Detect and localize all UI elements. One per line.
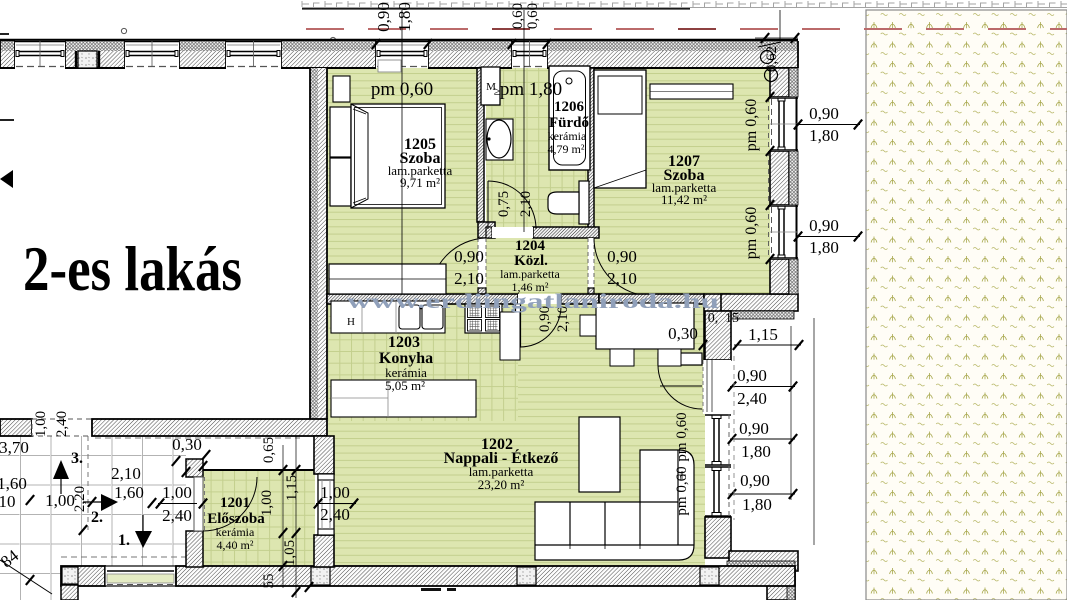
svg-text:0,60: 0,60 [510,3,526,29]
svg-text:0,65: 0,65 [261,437,277,463]
svg-text:0,90: 0,90 [607,247,637,266]
svg-text:2,40: 2,40 [54,411,70,437]
svg-text:2.: 2. [91,509,103,526]
svg-text:15: 15 [725,311,739,326]
svg-text:pm 0,60: pm 0,60 [743,99,760,151]
svg-text:1,80: 1,80 [809,238,839,257]
svg-text:10: 10 [0,492,16,511]
svg-text:1,00: 1,00 [45,491,75,510]
svg-text:23,20 m²: 23,20 m² [478,477,525,492]
svg-text:1,60: 1,60 [0,474,27,493]
svg-text:lam.parketta: lam.parketta [500,267,560,281]
svg-text:1203: 1203 [388,334,420,351]
svg-text:2,10: 2,10 [454,269,484,288]
svg-text:0,90: 0,90 [737,366,767,385]
svg-text:pm 0,60: pm 0,60 [674,466,690,515]
svg-text:1,60: 1,60 [114,483,144,502]
svg-text:1,80: 1,80 [741,442,771,461]
svg-text:2,10: 2,10 [111,464,141,483]
svg-text:4,79 m²: 4,79 m² [548,142,585,156]
svg-text:0,30: 0,30 [668,324,698,343]
svg-text:0,: 0, [708,311,719,326]
svg-text:9,71 m²: 9,71 m² [400,175,440,190]
svg-text:1206: 1206 [554,99,585,115]
svg-text:0,90: 0,90 [739,419,769,438]
svg-text:1,80: 1,80 [809,126,839,145]
svg-text:0,90: 0,90 [809,216,839,235]
svg-text:2,10: 2,10 [607,269,637,288]
svg-text:0,62: 0,62 [764,46,780,72]
svg-text:3,70: 3,70 [0,438,29,457]
svg-text:0,90: 0,90 [374,2,393,32]
svg-text:5,05 m²: 5,05 m² [385,378,425,393]
svg-text:kerámia: kerámia [216,525,255,539]
svg-text:pm 0,60: pm 0,60 [371,79,433,100]
svg-text:1,80: 1,80 [395,2,414,32]
svg-text:pm 1,80: pm 1,80 [500,79,562,100]
svg-text:www.erdiingatlaniroda.hu: www.erdiingatlaniroda.hu [347,289,720,313]
svg-text:0,60: 0,60 [525,3,541,29]
svg-text:pm 0,60: pm 0,60 [743,207,760,259]
svg-text:1201: 1201 [220,495,250,511]
svg-text:2,40: 2,40 [162,506,192,525]
svg-text:1,05: 1,05 [282,540,298,566]
svg-text:1,15: 1,15 [284,475,300,501]
svg-text:0,90: 0,90 [454,247,484,266]
svg-text:1,00: 1,00 [320,483,350,502]
svg-text:2,10: 2,10 [518,191,534,217]
svg-text:11,42 m²: 11,42 m² [661,192,707,207]
svg-text:1204: 1204 [515,238,546,254]
svg-text:1,00: 1,00 [162,483,192,502]
svg-text:3.: 3. [71,450,83,467]
svg-text:4,40 m²: 4,40 m² [217,538,254,552]
svg-text:1.: 1. [118,532,130,549]
svg-text:55: 55 [261,574,277,589]
svg-text:2,40: 2,40 [737,389,767,408]
svg-text:pm 0,60: pm 0,60 [674,412,690,461]
svg-text:0,90: 0,90 [740,471,770,490]
svg-text:kerámia: kerámia [548,129,587,143]
svg-text:0,75: 0,75 [496,191,512,217]
svg-text:1,00: 1,00 [33,411,49,437]
svg-text:2-es lakás: 2-es lakás [23,234,242,304]
svg-text:1,15: 1,15 [748,325,778,344]
svg-text:1,80: 1,80 [742,495,772,514]
svg-text:H: H [347,316,355,328]
svg-text:0,30: 0,30 [172,435,202,454]
svg-text:0,90: 0,90 [809,104,839,123]
svg-text:2,40: 2,40 [320,505,350,524]
svg-text:2,20: 2,20 [72,486,88,512]
